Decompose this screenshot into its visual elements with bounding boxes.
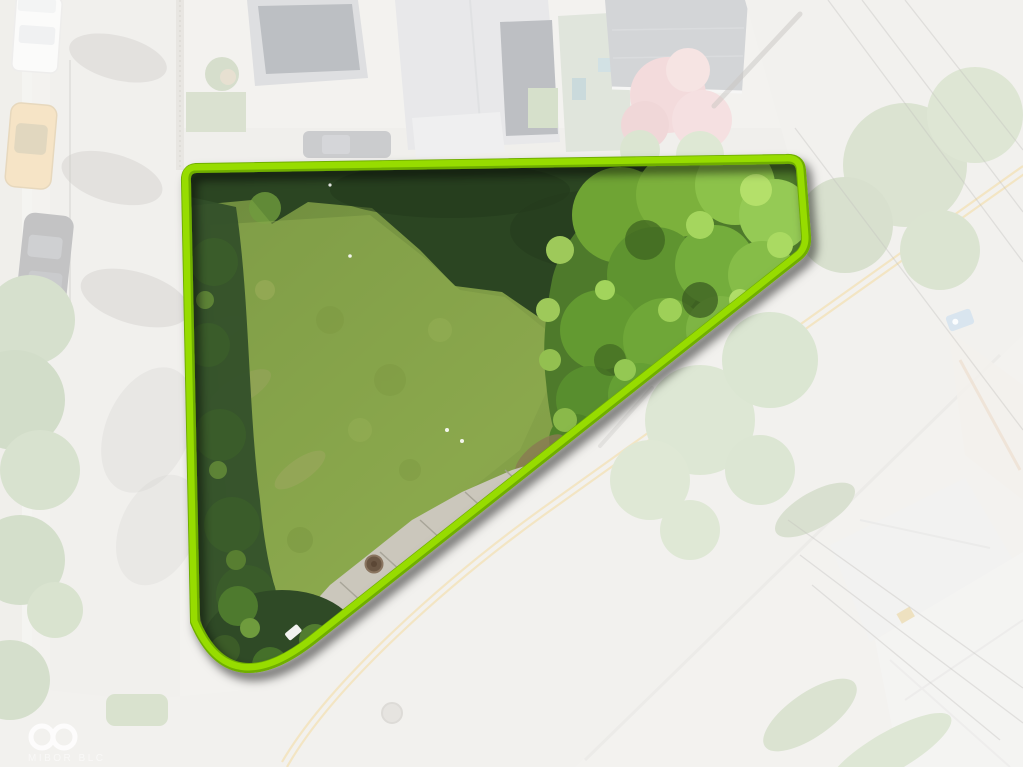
watermark-text: MIBOR BLC xyxy=(28,753,106,764)
aerial-photo-canvas: MIBOR BLC xyxy=(0,0,1023,767)
aerial-lot-photo: MIBOR BLC xyxy=(0,0,1023,767)
